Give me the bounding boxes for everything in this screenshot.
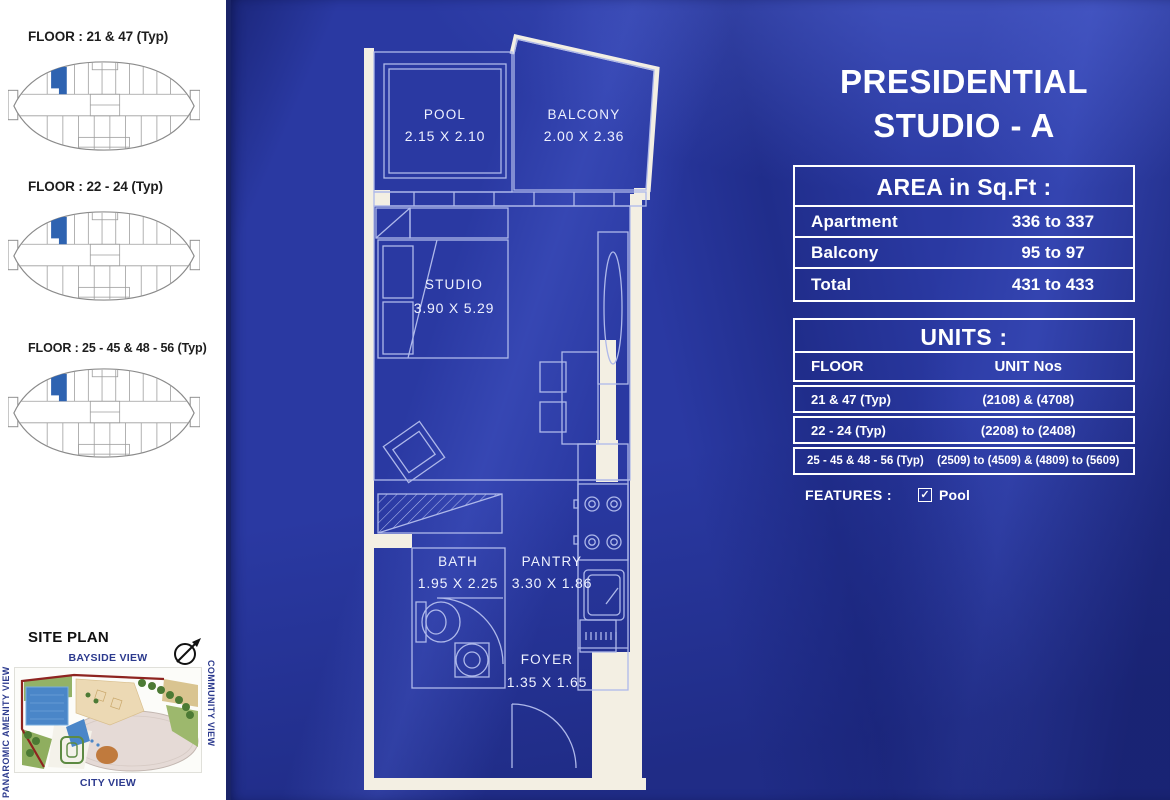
units-row-units: (2108) & (4708): [923, 392, 1133, 407]
community-view-label: COMMUNITY VIEW: [206, 660, 216, 800]
balcony-label: BALCONY: [548, 107, 621, 122]
units-table: UNITS : FLOOR UNIT Nos 21 & 47 (Typ) (21…: [793, 318, 1135, 475]
amenity-view-label: PANAROMIC AMENITY VIEW: [1, 648, 11, 798]
key-plan-diagram-3: [8, 362, 200, 464]
page-title-line1: PRESIDENTIAL: [793, 60, 1135, 104]
units-row-units: (2509) to (4509) & (4809) to (5609): [923, 455, 1133, 467]
area-row-label: Balcony: [795, 243, 973, 263]
city-view-label: CITY VIEW: [0, 777, 216, 789]
units-row-units: (2208) to (2408): [923, 423, 1133, 438]
key-plan-panel: FLOOR : 21 & 47 (Typ) FLOOR : 22 - 24 (T…: [0, 0, 226, 800]
site-plan-map: [14, 667, 202, 773]
pool-checkbox-icon: ✓: [918, 488, 932, 502]
area-row-value: 95 to 97: [973, 243, 1133, 263]
balcony-dims: 2.00 X 2.36: [544, 128, 624, 144]
table-row: Balcony 95 to 97: [795, 238, 1133, 269]
col-header-floor: FLOOR: [795, 358, 923, 375]
pool-label: POOL: [424, 107, 466, 122]
page-title: PRESIDENTIAL STUDIO - A: [793, 60, 1135, 147]
units-column-headers: FLOOR UNIT Nos: [793, 353, 1135, 382]
site-plan-title: SITE PLAN: [28, 629, 109, 646]
key-plan-label-2: FLOOR : 22 - 24 (Typ): [28, 179, 163, 194]
foyer-label: FOYER: [521, 652, 574, 667]
features-label: FEATURES :: [805, 487, 892, 503]
table-row: 21 & 47 (Typ) (2108) & (4708): [793, 385, 1135, 413]
units-table-header: UNITS :: [793, 318, 1135, 353]
area-table: AREA in Sq.Ft : Apartment 336 to 337 Bal…: [793, 165, 1135, 302]
pantry-dims: 3.30 X 1.86: [512, 575, 592, 591]
units-row-floor: 22 - 24 (Typ): [795, 423, 923, 438]
studio-label: STUDIO: [425, 277, 483, 292]
area-row-value: 431 to 433: [973, 275, 1133, 295]
col-header-unitnos: UNIT Nos: [923, 358, 1133, 375]
table-row: Apartment 336 to 337: [795, 207, 1133, 238]
area-row-value: 336 to 337: [973, 212, 1133, 232]
pool-dims: 2.15 X 2.10: [405, 128, 485, 144]
foyer-dims: 1.35 X 1.65: [507, 674, 587, 690]
area-row-label: Total: [795, 275, 973, 295]
bath-dims: 1.95 X 2.25: [418, 575, 498, 591]
area-row-label: Apartment: [795, 212, 973, 232]
pool-feature-label: Pool: [939, 487, 970, 503]
key-plan-label-3: FLOOR : 25 - 45 & 48 - 56 (Typ): [28, 341, 207, 355]
floor-plan: POOL 2.15 X 2.10 BALCONY 2.00 X 2.36 STU…: [350, 30, 710, 800]
table-row: 22 - 24 (Typ) (2208) to (2408): [793, 416, 1135, 444]
area-table-header: AREA in Sq.Ft :: [795, 167, 1133, 207]
bayside-view-label: BAYSIDE VIEW: [0, 652, 216, 664]
studio-dims: 3.90 X 5.29: [414, 300, 494, 316]
features-row: FEATURES : ✓ Pool: [805, 487, 970, 503]
table-row: 25 - 45 & 48 - 56 (Typ) (2509) to (4509)…: [793, 447, 1135, 475]
pantry-label: PANTRY: [522, 554, 583, 569]
key-plan-diagram-2: [8, 205, 200, 307]
units-row-floor: 21 & 47 (Typ): [795, 392, 923, 407]
brochure-page: FLOOR : 21 & 47 (Typ) FLOOR : 22 - 24 (T…: [0, 0, 1170, 800]
units-row-floor: 25 - 45 & 48 - 56 (Typ): [795, 455, 923, 467]
key-plan-label-1: FLOOR : 21 & 47 (Typ): [28, 29, 168, 44]
key-plan-diagram-1: [8, 55, 200, 157]
table-row: Total 431 to 433: [795, 269, 1133, 300]
page-title-line2: STUDIO - A: [793, 104, 1135, 148]
bath-label: BATH: [438, 554, 478, 569]
